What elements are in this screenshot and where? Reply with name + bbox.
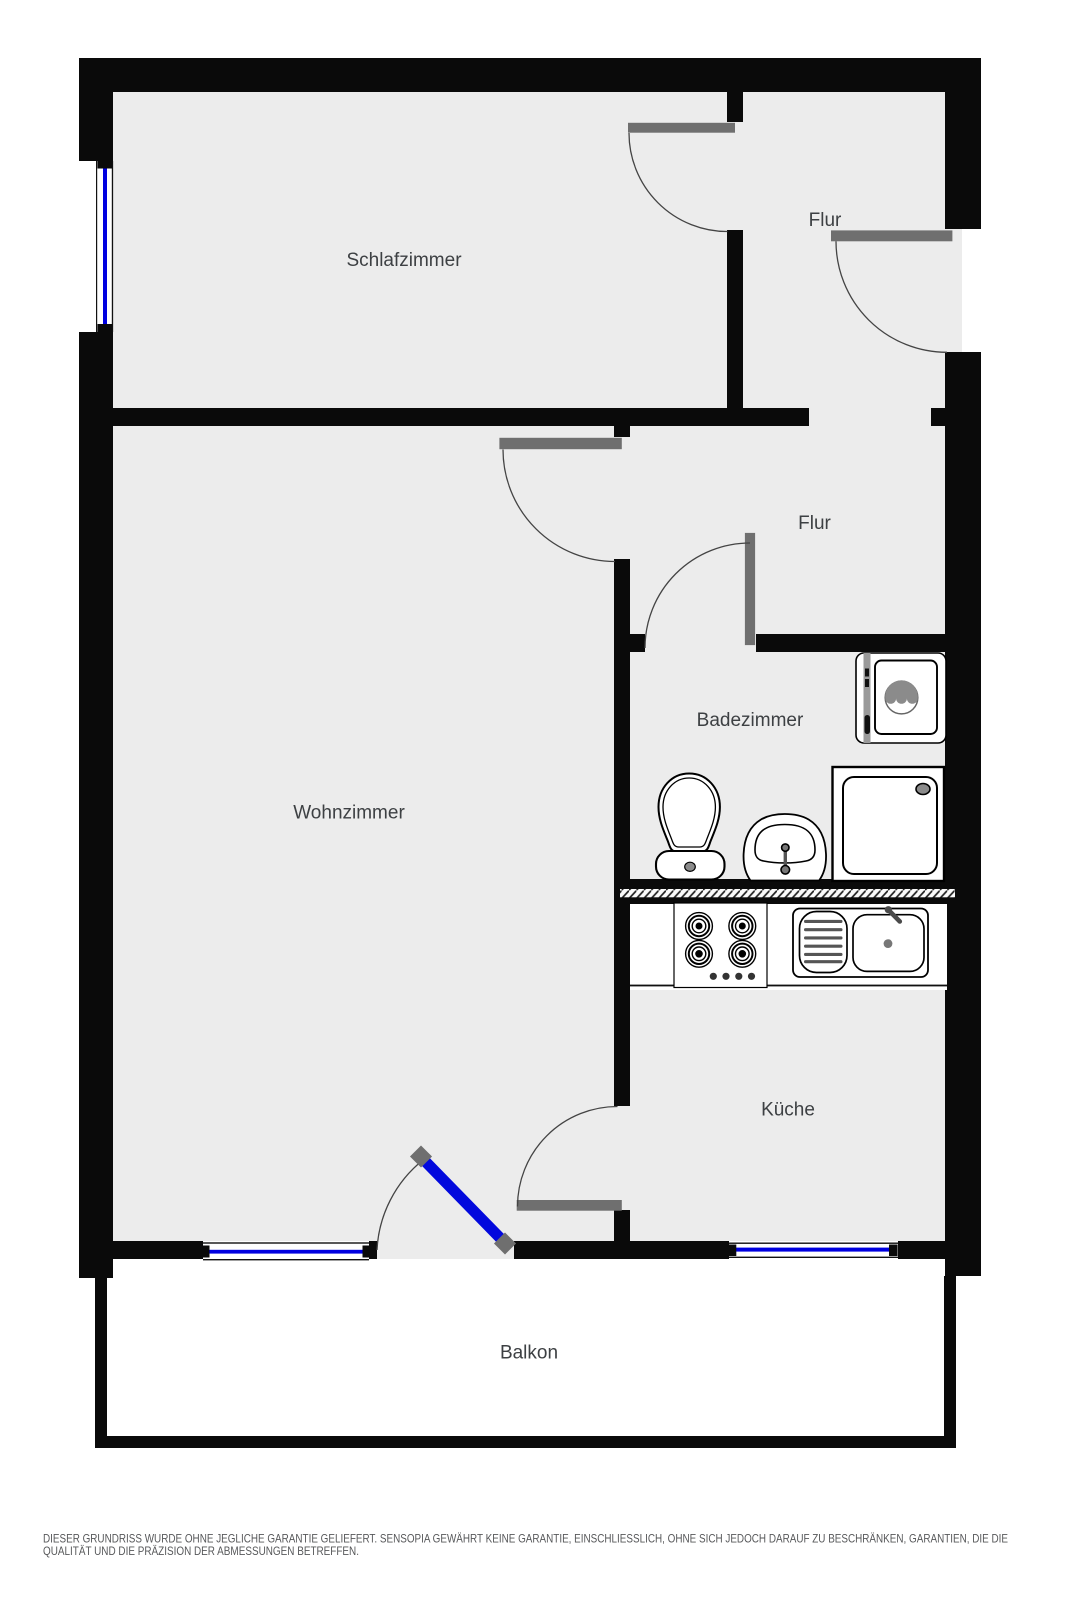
svg-text:Küche: Küche	[761, 1100, 815, 1121]
svg-text:Flur: Flur	[809, 210, 842, 231]
svg-text:Schlafzimmer: Schlafzimmer	[346, 250, 462, 271]
svg-text:Badezimmer: Badezimmer	[697, 710, 804, 731]
svg-text:QUALITÄT UND DIE PRÄZISION DER: QUALITÄT UND DIE PRÄZISION DER ABMESSUNG…	[43, 1544, 359, 1558]
svg-text:Balkon: Balkon	[500, 1343, 558, 1364]
svg-text:Flur: Flur	[798, 513, 831, 534]
svg-text:Wohnzimmer: Wohnzimmer	[293, 803, 405, 824]
